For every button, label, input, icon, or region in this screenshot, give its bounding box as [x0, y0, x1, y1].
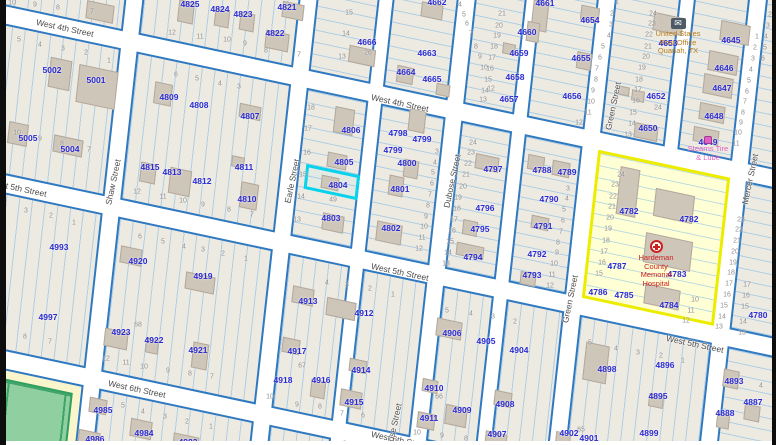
parcel-4659[interactable]: 4659 [510, 48, 529, 58]
parcel-4910[interactable]: 4910 [425, 383, 444, 393]
lot-number: 14 [628, 121, 636, 128]
lot-number: 10 [550, 261, 558, 268]
lot-number: 23 [467, 150, 475, 157]
parcel-4908[interactable]: 4908 [496, 399, 515, 409]
lot-number: 13 [338, 54, 346, 61]
parcel-4811[interactable]: 4811 [235, 162, 253, 172]
lot-number: 7 [90, 9, 94, 16]
lot-number: 17 [725, 281, 733, 288]
lot-number: 17 [304, 126, 312, 133]
parcel-4805[interactable]: 4805 [335, 157, 354, 167]
post-office-label: United States Post Office Quanah, TX [649, 30, 707, 56]
lot-number: 20 [606, 215, 614, 222]
parcel-4665[interactable]: 4665 [423, 74, 442, 84]
parcel-4792[interactable]: 4792 [528, 249, 547, 259]
parcel-4798[interactable]: 4798 [389, 128, 408, 138]
lot-number: 23 [737, 217, 745, 224]
parcel-4807[interactable]: 4807 [241, 111, 260, 121]
lot-number: 2 [513, 319, 517, 326]
mail-icon: ✉ [671, 18, 686, 29]
parcel-4912[interactable]: 4912 [355, 308, 374, 318]
lot-number: 1 [209, 424, 213, 431]
lot-number: 4 [764, 34, 768, 41]
parcel-4802[interactable]: 4802 [382, 223, 401, 233]
parcel-4920[interactable]: 4920 [129, 256, 148, 266]
lot-number: 1 [755, 34, 759, 41]
parcel-4797[interactable]: 4797 [484, 164, 503, 174]
lot-number: 4 [141, 409, 145, 416]
tire-shop-poi[interactable]: Stearns Tire & Lube [682, 136, 734, 162]
lot-number: 18 [635, 77, 643, 84]
lot-number: 16 [303, 150, 311, 157]
lot-number: 11 [548, 272, 555, 279]
parcel-4646[interactable]: 4646 [715, 63, 734, 73]
lot-number: 9 [440, 433, 444, 440]
parcel-4785[interactable]: 4785 [615, 290, 634, 300]
parcel-4791[interactable]: 4791 [534, 221, 553, 231]
city-block [120, 52, 291, 233]
left-edge-bar [0, 0, 6, 445]
lot-number: 3 [491, 314, 495, 321]
lot-number: 10 [179, 198, 187, 205]
lot-number: 12 [133, 189, 141, 196]
parcel-4923[interactable]: 4923 [112, 327, 131, 337]
lot-number: 3 [61, 46, 65, 53]
lot-number: 6 [745, 89, 749, 96]
lot-number: 11 [584, 110, 591, 117]
lot-number: 7 [340, 411, 344, 418]
hospital-poi[interactable]: Hardeman County Memorial Hospital [628, 240, 684, 288]
lot-number: 15 [299, 172, 307, 179]
lot-number: 19 [604, 226, 612, 233]
lot-number: 9 [166, 368, 170, 375]
lot-number: 11 [687, 308, 694, 315]
parcel-4787[interactable]: 4787 [608, 261, 627, 271]
parcel-4662[interactable]: 4662 [428, 0, 447, 7]
parcel-4922[interactable]: 4922 [145, 335, 164, 345]
city-block [489, 299, 564, 445]
lot-number: 5 [763, 45, 767, 52]
lot-number: 22 [609, 194, 617, 201]
lot-number: 2 [368, 286, 372, 293]
lot-number: 8 [594, 77, 598, 84]
right-edge-bar [772, 0, 776, 445]
parcel-4645[interactable]: 4645 [722, 35, 741, 45]
parcel-4782[interactable]: 4782 [680, 214, 699, 224]
lot-number: 19 [493, 33, 501, 40]
lot-number: 10 [413, 430, 421, 437]
parcel-4655[interactable]: 4655 [572, 53, 591, 63]
parcel-4803[interactable]: 4803 [322, 213, 341, 223]
parcel-4921[interactable]: 4921 [189, 345, 208, 355]
parcel-4913[interactable]: 4913 [299, 296, 318, 306]
lot-number: 1 [615, 0, 619, 6]
parcel-4825[interactable]: 4825 [181, 0, 200, 9]
lot-number: 9 [739, 120, 743, 127]
lot-number: 3 [163, 414, 167, 421]
building-footprint [435, 83, 450, 98]
lot-number: 8 [741, 110, 745, 117]
parcel-4888[interactable]: 4888 [716, 408, 735, 418]
parcel-4657[interactable]: 4657 [500, 94, 519, 104]
parcel-4794[interactable]: 4794 [464, 252, 483, 262]
parcel-4666[interactable]: 4666 [358, 37, 377, 47]
lot-number: 16 [598, 260, 606, 267]
lot-number: 9 [295, 402, 299, 409]
lot-number: 10 [691, 297, 699, 304]
lot-number: 21 [608, 204, 616, 211]
lot-number: 66 [435, 394, 443, 401]
parcel-5005[interactable]: 5005 [19, 133, 38, 143]
lot-number: 8 [426, 203, 430, 210]
lot-number: 7 [87, 147, 91, 154]
lot-number: 6 [174, 72, 178, 79]
lot-number: 10 [140, 364, 148, 371]
lot-number: 5 [601, 44, 605, 51]
lot-number: 20 [459, 184, 467, 191]
lot-number: 5 [445, 308, 449, 315]
lot-number: 3 [609, 22, 613, 29]
parcel-4815[interactable]: 4815 [141, 162, 160, 172]
parcel-4784[interactable]: 4784 [660, 300, 679, 310]
lot-number: 7 [743, 99, 747, 106]
lot-number: 2 [84, 50, 88, 57]
lot-number: 8 [474, 44, 478, 51]
lot-number: 19 [729, 260, 737, 267]
lot-number: 15 [595, 271, 603, 278]
parcel-4789[interactable]: 4789 [558, 167, 577, 177]
parcel-4656[interactable]: 4656 [563, 91, 582, 101]
lot-number: 67 [298, 363, 306, 370]
lot-number: 4 [218, 81, 222, 88]
lot-number: 14 [718, 314, 726, 321]
parcel-4824[interactable]: 4824 [211, 4, 230, 14]
lot-number: 6 [761, 56, 765, 63]
lot-number: 5 [462, 12, 466, 19]
lot-number: 26 [364, 50, 372, 57]
lot-number: 20 [731, 249, 739, 256]
lot-number: 19 [454, 195, 462, 202]
lot-number: 2 [49, 213, 53, 220]
parcel-4916[interactable]: 4916 [312, 375, 331, 385]
parcel-4809[interactable]: 4809 [160, 92, 179, 102]
lot-number: 23 [611, 182, 619, 189]
lot-number: 2 [221, 251, 225, 258]
parcel-4660[interactable]: 4660 [518, 27, 537, 37]
lot-number: 10 [587, 99, 595, 106]
lot-number: 15 [484, 77, 492, 84]
parcel-4993[interactable]: 4993 [50, 242, 69, 252]
parcel-4801[interactable]: 4801 [391, 184, 410, 194]
parcel-4895[interactable]: 4895 [649, 391, 668, 401]
lot-number: 1 [391, 292, 395, 299]
hospital-label: Hardeman County Memorial Hospital [628, 254, 684, 288]
post-office-poi[interactable]: ✉ United States Post Office Quanah, TX [649, 18, 707, 56]
lot-number: 5 [431, 170, 435, 177]
lot-number: 6 [465, 21, 469, 28]
lot-number: 3 [636, 350, 640, 357]
parcel-4915[interactable]: 4915 [345, 397, 364, 407]
lot-number: 10 [8, 0, 16, 7]
parcel-4907[interactable]: 4907 [488, 429, 507, 439]
lot-number: 4 [607, 33, 611, 40]
lot-number: 19 [638, 65, 646, 72]
parcel-4896[interactable]: 4896 [656, 360, 675, 370]
lot-number: 2 [185, 419, 189, 426]
building-footprint [75, 64, 118, 110]
building-footprint [582, 342, 610, 385]
city-block [710, 346, 776, 445]
lot-number: 7 [250, 212, 254, 219]
lot-number: 8 [188, 371, 192, 378]
parcel-4799[interactable]: 4799 [384, 145, 403, 155]
lot-number: 10 [734, 130, 742, 137]
lot-number: 7 [428, 192, 432, 199]
lot-number: 15 [629, 110, 637, 117]
lot-number: 9 [424, 214, 428, 221]
lot-number: 3 [237, 84, 241, 91]
lot-number: 12 [682, 318, 690, 325]
lot-number: 5 [588, 340, 592, 347]
parcel-4893[interactable]: 4893 [725, 376, 744, 386]
lot-number: 5 [562, 207, 566, 214]
lot-number: 5 [17, 37, 21, 44]
lot-number: 17 [600, 249, 608, 256]
lot-number: 7 [469, 31, 473, 38]
parcel-4902[interactable]: 4902 [560, 428, 579, 438]
parcel-4919[interactable]: 4919 [194, 271, 213, 281]
parcel-4799[interactable]: 4799 [413, 134, 432, 144]
lot-number: 21 [733, 238, 741, 245]
parcel-4648[interactable]: 4648 [705, 111, 724, 121]
parcel-4914[interactable]: 4914 [352, 365, 371, 375]
lot-number: 14 [739, 319, 747, 326]
lot-number: 3 [766, 23, 770, 30]
parcel-4806[interactable]: 4806 [342, 125, 361, 135]
parcel-4808[interactable]: 4808 [190, 100, 209, 110]
lot-number: 13 [293, 217, 301, 224]
lot-number: 6 [598, 55, 602, 62]
parcel-4780[interactable]: 4780 [749, 310, 768, 320]
lot-number: 5 [121, 403, 125, 410]
lot-number: 3 [435, 149, 439, 156]
parcel-4898[interactable]: 4898 [598, 364, 617, 374]
lot-number: 3 [345, 282, 349, 289]
parcel-4786[interactable]: 4786 [589, 287, 608, 297]
lot-number: 17 [450, 217, 458, 224]
lot-number: 16 [486, 66, 494, 73]
lot-number: 5 [747, 78, 751, 85]
lot-number: 4 [325, 280, 329, 287]
lot-number: 13 [715, 324, 723, 331]
parcel-4663[interactable]: 4663 [418, 48, 437, 58]
lot-number: 9 [201, 202, 205, 209]
lot-number: 12 [546, 283, 554, 290]
city-block [101, 217, 273, 405]
lot-number: 8 [264, 48, 268, 55]
lot-number: 17 [743, 282, 751, 289]
parcel-4909[interactable]: 4909 [453, 405, 472, 415]
lot-number: 14 [481, 88, 489, 95]
lot-number: 12 [102, 356, 110, 363]
lot-number: 3 [751, 56, 755, 63]
parcel-4650[interactable]: 4650 [639, 123, 658, 133]
parcel-4905[interactable]: 4905 [477, 336, 496, 346]
lot-number: 5 [195, 76, 199, 83]
lot-number: 14 [297, 194, 305, 201]
lot-number: 10 [223, 37, 231, 44]
lot-number: 3 [24, 208, 28, 215]
lot-number: 13 [442, 261, 450, 268]
lot-number: 6 [361, 413, 365, 420]
lot-number: 21 [498, 11, 506, 18]
parcel-4917[interactable]: 4917 [288, 346, 307, 356]
lot-number: 11 [159, 194, 166, 201]
parcel-4997[interactable]: 4997 [39, 312, 58, 322]
lot-number: 49 [329, 197, 337, 204]
parcel-4796[interactable]: 4796 [476, 203, 495, 213]
lot-number: 9 [33, 2, 37, 9]
city-block [346, 269, 428, 438]
parcel-4782[interactable]: 4782 [620, 206, 639, 216]
lot-number: 12 [415, 246, 423, 253]
lot-number: 1 [244, 256, 248, 263]
lot-number: 20 [495, 23, 503, 30]
parcel-4918[interactable]: 4918 [274, 375, 293, 385]
lot-number: 6 [430, 181, 434, 188]
parcel-5002[interactable]: 5002 [43, 65, 62, 75]
lot-number: 11 [418, 235, 425, 242]
city-block [729, 181, 776, 358]
lot-number: 15 [345, 10, 353, 17]
poi-marker-icon [704, 136, 712, 144]
lot-number: 18 [490, 44, 498, 51]
lot-number: 8 [318, 404, 322, 411]
lot-number: 7 [210, 374, 214, 381]
parcel-4899[interactable]: 4899 [640, 428, 659, 438]
lot-number: 6 [561, 218, 565, 225]
lot-number: 16 [448, 228, 456, 235]
lot-number: 4 [749, 67, 753, 74]
parcel-4790[interactable]: 4790 [540, 194, 559, 204]
parcel-5001[interactable]: 5001 [87, 75, 106, 85]
lot-number: 17 [634, 87, 642, 94]
lot-number: 15 [446, 239, 454, 246]
parcel-4788[interactable]: 4788 [533, 165, 552, 175]
hospital-cross-icon [650, 240, 663, 253]
parcel-4652[interactable]: 4652 [647, 91, 666, 101]
parcel-4800[interactable]: 4800 [398, 158, 417, 168]
lot-number: 24 [654, 105, 662, 112]
lot-number: 4 [182, 244, 186, 251]
lot-number: 22 [735, 227, 743, 234]
lot-number: 21 [462, 172, 470, 179]
lot-number: 15 [720, 303, 728, 310]
lot-number: 8 [556, 240, 560, 247]
lot-number: 17 [488, 55, 496, 62]
lot-number: 8 [56, 5, 60, 12]
parcel-4810[interactable]: 4810 [238, 194, 257, 204]
lot-number: 1 [681, 358, 685, 365]
lot-number: 2 [753, 45, 757, 52]
parcel-4664[interactable]: 4664 [397, 67, 416, 77]
lot-number: 10 [266, 394, 274, 401]
lot-number: 4 [565, 196, 569, 203]
map-canvas[interactable]: 1098712111098754321109876543121110987151… [0, 0, 776, 445]
lot-number: 9 [591, 88, 595, 95]
tire-shop-label: Stearns Tire & Lube [682, 145, 734, 162]
lot-number: 18 [307, 105, 315, 112]
lot-number: 24 [617, 172, 625, 179]
lot-number: 11 [196, 34, 203, 41]
lot-number: 13 [738, 330, 746, 337]
lot-number: 4 [759, 383, 763, 390]
lot-number: 2 [610, 11, 614, 18]
parcel-4661[interactable]: 4661 [536, 0, 555, 8]
parcel-4984[interactable]: 4984 [135, 428, 154, 438]
lot-number: 18 [453, 206, 461, 213]
lot-number: 3 [201, 247, 205, 254]
lot-number: 7 [595, 66, 599, 73]
lot-number: 18 [727, 270, 735, 277]
parcel-4985[interactable]: 4985 [94, 405, 113, 415]
parcel-4904[interactable]: 4904 [510, 345, 529, 355]
lot-number: 10 [420, 224, 428, 231]
parcel-4647[interactable]: 4647 [713, 83, 732, 93]
lot-number: 14 [444, 250, 452, 257]
parcel-4812[interactable]: 4812 [193, 176, 212, 186]
lot-number: 11 [122, 360, 129, 367]
parcel-4887[interactable]: 4887 [744, 397, 763, 407]
lot-number: 3 [566, 186, 570, 193]
parcel-4658[interactable]: 4658 [506, 72, 525, 82]
lot-number: 9 [478, 54, 482, 61]
lot-number: 4 [469, 311, 473, 318]
parcel-4821[interactable]: 4821 [278, 2, 297, 12]
lot-number: 7 [559, 229, 563, 236]
lot-number: 8 [23, 334, 27, 341]
parcel-4795[interactable]: 4795 [471, 224, 490, 234]
lot-number: 16 [723, 292, 731, 299]
parcel-4823[interactable]: 4823 [234, 9, 253, 19]
parcel-4804[interactable]: 4804 [329, 180, 348, 190]
parcel-4793[interactable]: 4793 [523, 270, 542, 280]
lot-number: 12 [575, 120, 583, 127]
lot-number: 18 [602, 238, 610, 245]
lot-number: 4 [433, 160, 437, 167]
lot-number: 9 [555, 250, 559, 257]
parcel-4654[interactable]: 4654 [581, 15, 600, 25]
parcel-4813[interactable]: 4813 [163, 167, 182, 177]
lot-number: 9 [38, 136, 42, 143]
lot-number: 24 [469, 140, 477, 147]
lot-number: 9 [243, 41, 247, 48]
lot-number: 6 [138, 234, 142, 241]
lot-number: 68 [134, 322, 142, 329]
lot-number: 5 [161, 239, 165, 246]
lot-number: 13 [479, 97, 487, 104]
parcel-5004[interactable]: 5004 [61, 144, 80, 154]
lot-number: 22 [464, 161, 472, 168]
parcel-4911[interactable]: 4911 [420, 413, 438, 423]
lot-number: 14 [342, 31, 350, 38]
lot-number: 13 [624, 132, 632, 139]
parcel-4822[interactable]: 4822 [266, 28, 285, 38]
lot-number: 1 [107, 58, 111, 65]
lot-number: 7 [48, 339, 52, 346]
lot-number: 1 [72, 220, 76, 227]
parcel-4906[interactable]: 4906 [443, 328, 462, 338]
